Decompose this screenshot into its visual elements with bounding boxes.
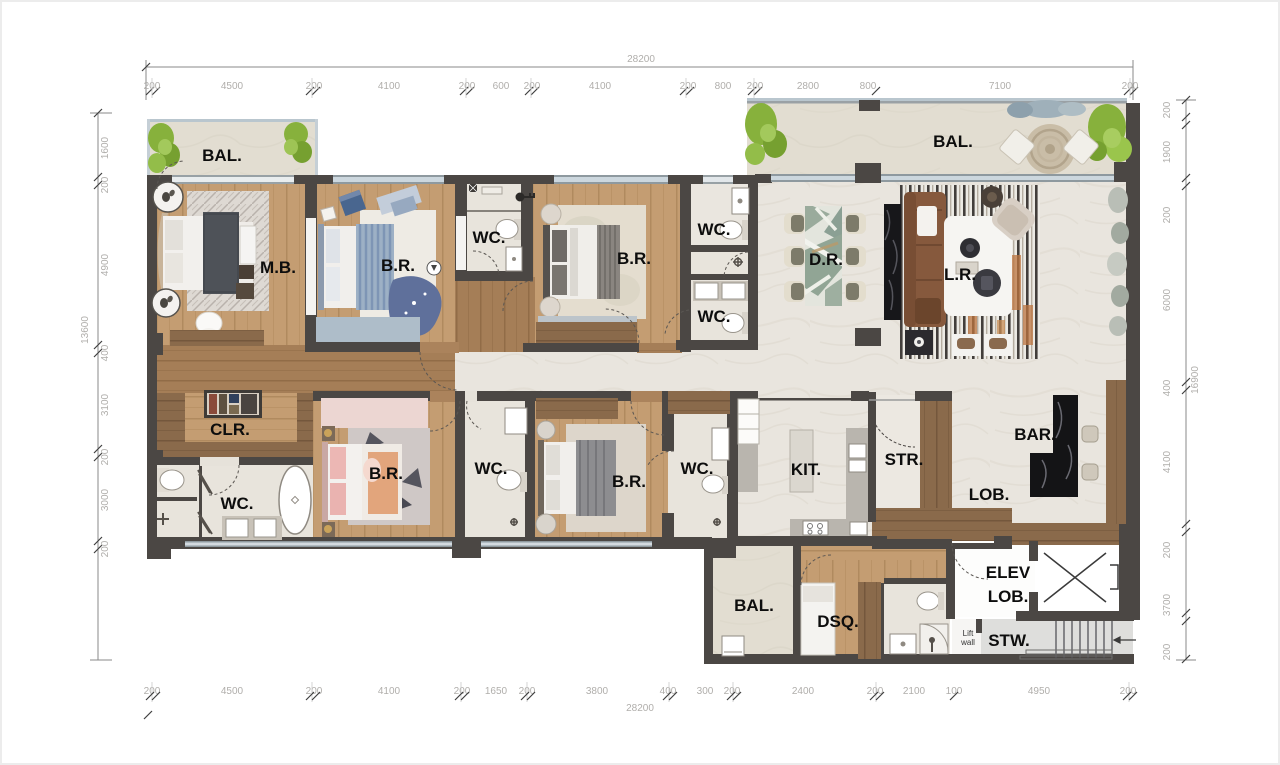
svg-text:3100: 3100 [100, 393, 111, 416]
svg-text:600: 600 [493, 81, 510, 92]
svg-text:D.R.: D.R. [809, 250, 843, 269]
svg-text:200: 200 [306, 686, 323, 697]
svg-text:LOB.: LOB. [969, 485, 1010, 504]
svg-text:400: 400 [100, 344, 111, 361]
svg-text:1900: 1900 [1162, 140, 1173, 163]
svg-text:B.R.: B.R. [612, 472, 646, 491]
svg-text:WC.: WC. [697, 220, 730, 239]
svg-text:4100: 4100 [378, 686, 401, 697]
svg-text:200: 200 [459, 81, 476, 92]
svg-text:BAR.: BAR. [1014, 425, 1056, 444]
svg-text:WC.: WC. [474, 459, 507, 478]
svg-text:28200: 28200 [626, 703, 654, 714]
svg-text:4100: 4100 [1162, 450, 1173, 473]
svg-text:BAL.: BAL. [734, 596, 774, 615]
svg-text:3000: 3000 [100, 488, 111, 511]
svg-text:200: 200 [306, 81, 323, 92]
svg-text:200: 200 [454, 686, 471, 697]
svg-text:1650: 1650 [485, 686, 508, 697]
svg-text:STR.: STR. [885, 450, 924, 469]
svg-text:2800: 2800 [797, 81, 820, 92]
svg-text:1600: 1600 [100, 136, 111, 159]
svg-text:4900: 4900 [100, 253, 111, 276]
svg-text:B.R.: B.R. [381, 256, 415, 275]
svg-text:BAL.: BAL. [933, 132, 973, 151]
svg-text:CLR.: CLR. [210, 420, 250, 439]
svg-text:4500: 4500 [221, 81, 244, 92]
svg-text:800: 800 [860, 81, 877, 92]
svg-text:ELEV: ELEV [986, 563, 1031, 582]
svg-text:wall: wall [960, 638, 975, 647]
svg-text:BAL.: BAL. [202, 146, 242, 165]
svg-text:28200: 28200 [627, 54, 655, 65]
svg-text:400: 400 [1162, 379, 1173, 396]
svg-text:WC.: WC. [680, 459, 713, 478]
svg-text:200: 200 [100, 448, 111, 465]
svg-text:200: 200 [1162, 206, 1173, 223]
svg-text:200: 200 [524, 81, 541, 92]
svg-text:4950: 4950 [1028, 686, 1051, 697]
svg-text:200: 200 [1162, 643, 1173, 660]
svg-text:200: 200 [747, 81, 764, 92]
svg-text:WC.: WC. [220, 494, 253, 513]
svg-text:L.R.: L.R. [944, 265, 976, 284]
svg-text:STW.: STW. [988, 631, 1030, 650]
svg-text:M.B.: M.B. [260, 258, 296, 277]
svg-text:7100: 7100 [989, 81, 1012, 92]
svg-text:3800: 3800 [586, 686, 609, 697]
svg-text:LOB.: LOB. [988, 587, 1029, 606]
svg-text:WC.: WC. [697, 307, 730, 326]
svg-text:4100: 4100 [589, 81, 612, 92]
svg-text:16900: 16900 [1190, 366, 1201, 394]
svg-text:200: 200 [100, 176, 111, 193]
svg-text:4100: 4100 [378, 81, 401, 92]
svg-text:WC.: WC. [472, 228, 505, 247]
svg-text:2400: 2400 [792, 686, 815, 697]
svg-text:200: 200 [1162, 101, 1173, 118]
svg-text:200: 200 [1162, 541, 1173, 558]
svg-text:6000: 6000 [1162, 288, 1173, 311]
svg-text:B.R.: B.R. [617, 249, 651, 268]
svg-text:Lift: Lift [963, 629, 974, 638]
svg-text:200: 200 [100, 540, 111, 557]
svg-text:4500: 4500 [221, 686, 244, 697]
svg-text:300: 300 [697, 686, 714, 697]
svg-text:DSQ.: DSQ. [817, 612, 859, 631]
svg-text:800: 800 [715, 81, 732, 92]
svg-text:200: 200 [680, 81, 697, 92]
svg-text:2100: 2100 [903, 686, 926, 697]
svg-text:13600: 13600 [80, 316, 91, 344]
svg-text:KIT.: KIT. [791, 460, 821, 479]
svg-text:B.R.: B.R. [369, 464, 403, 483]
svg-text:3700: 3700 [1162, 593, 1173, 616]
